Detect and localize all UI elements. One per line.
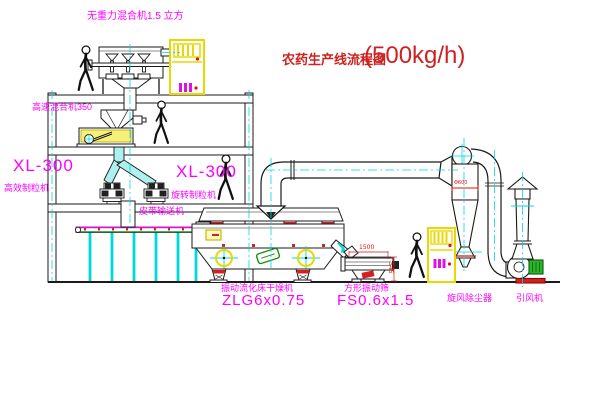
label-dryer-model: ZLG6x0.75 [222, 293, 305, 308]
label-high-speed-mixer: 高速混合机350 [32, 103, 92, 112]
pesticide-line-flow-diagram: 农药生产线流程图 (500kg/h) 无重力混合机1.5 立方 高速混合机350… [0, 0, 600, 403]
belt-conveyor [75, 227, 202, 281]
control-cabinet-upper [170, 40, 204, 94]
label-gravity-free-mixer: 无重力混合机1.5 立方 [87, 12, 184, 22]
label-sieve-model: FS0.6x1.5 [337, 293, 414, 308]
person-icon [410, 233, 424, 277]
fan-base [516, 279, 545, 284]
granulator-left [100, 183, 124, 204]
label-fan: 引风机 [516, 294, 543, 303]
label-belt-conveyor: 皮带输送机 [139, 207, 184, 216]
dimension-sieve-height: 545 [387, 262, 393, 273]
high-speed-mixer [77, 110, 146, 147]
dimension-cyclone-dia: Φ600 [454, 181, 467, 186]
label-granulator-left-model: XL-300 [13, 157, 74, 174]
person-icon [155, 101, 168, 143]
diagram-title-capacity: (500kg/h) [364, 44, 465, 68]
person-icon [79, 46, 93, 90]
label-granulator-center-type: 旋转制粒机 [171, 191, 216, 200]
discharge-duct [121, 201, 135, 227]
cabinet-knobs-icon [179, 83, 192, 92]
dimension-sieve-length: 1500 [359, 245, 374, 251]
cabinet-knobs-icon [434, 259, 446, 268]
granulator-right [144, 183, 168, 204]
control-cabinet-lower [428, 228, 455, 282]
label-granulator-left-type: 高效制粒机 [4, 184, 49, 193]
induced-draft-fan [506, 256, 545, 284]
label-granulator-center-model: XL-300 [176, 163, 237, 180]
label-cyclone: 旋风除尘器 [447, 294, 492, 303]
